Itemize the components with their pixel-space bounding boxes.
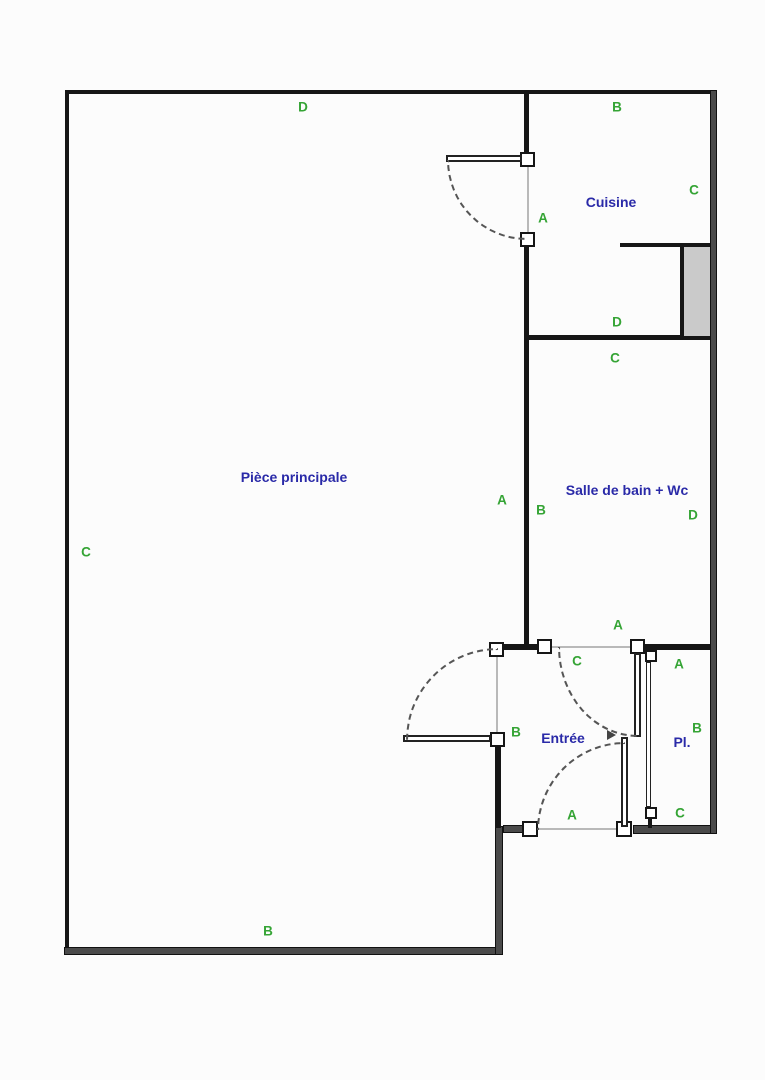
jamb-front-left	[522, 821, 538, 837]
opening-kitchen-door	[527, 167, 529, 233]
wall-mark: C	[81, 545, 91, 560]
jamb-bath-mid	[537, 639, 552, 654]
wall-mark: C	[689, 183, 699, 198]
jamb-placard-bottom	[645, 807, 657, 819]
floorplan-canvas: Pièce principale Cuisine Salle de bain +…	[0, 0, 765, 1080]
wall-mark: B	[263, 924, 273, 939]
wall-right	[710, 90, 717, 834]
wall-mark: B	[511, 725, 521, 740]
door-leaf-placard	[646, 662, 651, 807]
wall-step-vertical	[495, 826, 503, 955]
room-label-piece-principale: Pièce principale	[241, 469, 348, 485]
door-arc-entree	[406, 648, 498, 740]
wall-mark: A	[538, 211, 548, 226]
wall-mark: A	[567, 808, 577, 823]
wall-mark: D	[298, 100, 308, 115]
room-label-placard: Pl.	[673, 734, 690, 750]
jamb-placard-top	[645, 650, 657, 662]
room-label-salle-de-bain: Salle de bain + Wc	[566, 482, 689, 498]
wall-mark: C	[572, 654, 582, 669]
wall-divider-kitchen-top	[524, 94, 529, 155]
wall-mark: A	[497, 493, 507, 508]
wall-bottom-right	[633, 825, 717, 834]
room-label-cuisine: Cuisine	[586, 194, 637, 210]
wall-mark: A	[674, 657, 684, 672]
room-label-entree: Entrée	[541, 730, 585, 746]
door-swing-arrow	[607, 730, 616, 740]
wall-mark: C	[675, 806, 685, 821]
door-arc-front	[537, 742, 625, 830]
wall-bath-bottom-stub	[504, 644, 538, 650]
wall-divider-main	[524, 246, 529, 645]
wall-mark: A	[613, 618, 623, 633]
door-arc-bathroom	[558, 647, 638, 737]
wall-mark: B	[536, 503, 546, 518]
wall-mark: D	[688, 508, 698, 523]
wall-entree-left	[495, 747, 501, 828]
wall-mark: C	[610, 351, 620, 366]
wall-mark: B	[692, 721, 702, 736]
door-arc-kitchen	[447, 160, 527, 240]
wall-mark: B	[612, 100, 622, 115]
wall-top	[65, 90, 717, 94]
wall-mark: D	[612, 315, 622, 330]
kitchen-appliance-block	[684, 247, 710, 336]
wall-left	[65, 90, 69, 955]
wall-bottom-main	[64, 947, 503, 955]
